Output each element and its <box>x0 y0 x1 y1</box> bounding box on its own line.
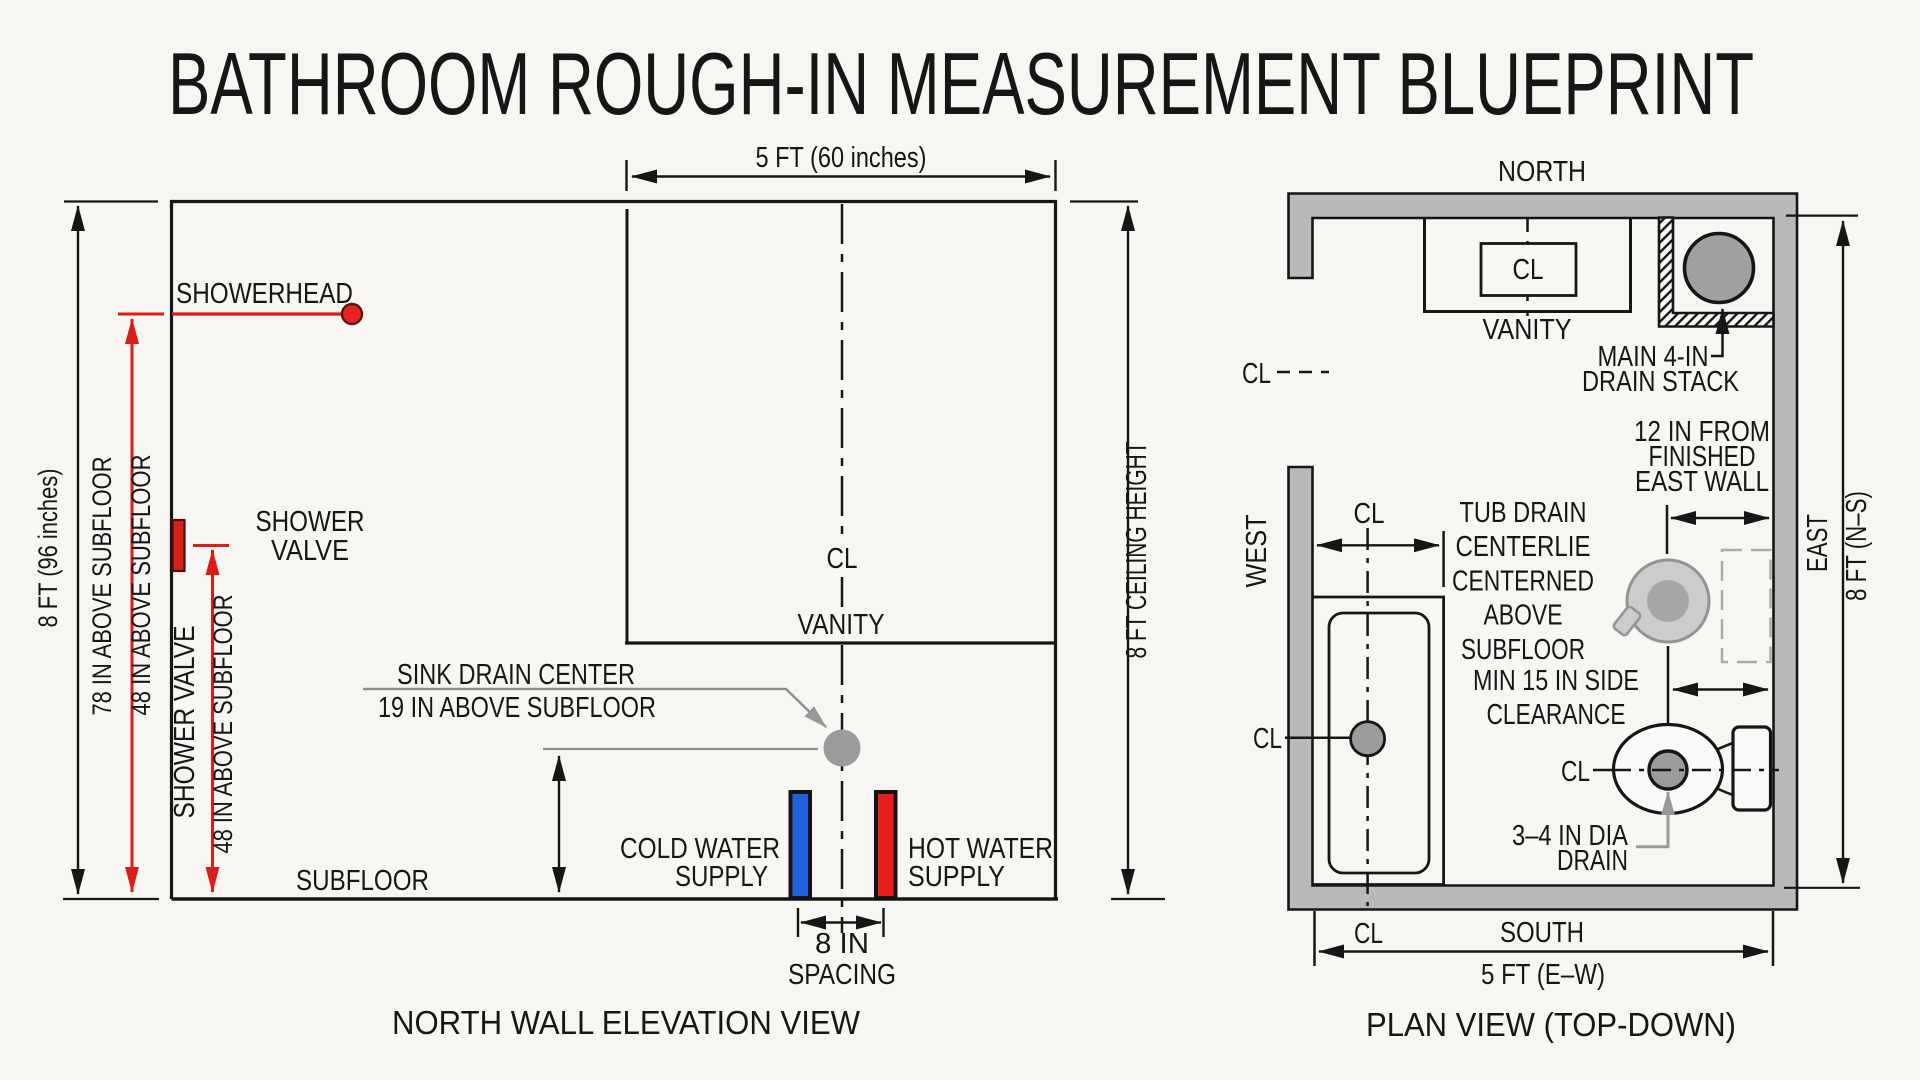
svg-text:NORTH: NORTH <box>1498 156 1586 188</box>
svg-text:8 FT (96 inches): 8 FT (96 inches) <box>33 469 63 628</box>
svg-text:CL: CL <box>1354 918 1383 950</box>
svg-text:CL: CL <box>1513 254 1544 286</box>
svg-text:8 IN: 8 IN <box>815 928 869 960</box>
svg-text:48 IN ABOVE SUBFLOOR: 48 IN ABOVE SUBFLOOR <box>208 595 238 854</box>
svg-text:CENTERNED: CENTERNED <box>1452 565 1594 597</box>
svg-text:DRAIN: DRAIN <box>1557 845 1628 877</box>
svg-text:SUBFLOOR: SUBFLOOR <box>296 865 429 897</box>
svg-text:5 FT (60 inches): 5 FT (60 inches) <box>756 142 927 174</box>
svg-text:VALVE: VALVE <box>271 535 349 567</box>
svg-text:PLAN VIEW (TOP-DOWN): PLAN VIEW (TOP-DOWN) <box>1366 1007 1736 1044</box>
svg-text:TUB DRAIN: TUB DRAIN <box>1460 497 1587 529</box>
svg-text:CL: CL <box>1561 756 1590 788</box>
svg-text:BATHROOM ROUGH-IN MEASUREMENT: BATHROOM ROUGH-IN MEASUREMENT BLUEPRINT <box>168 34 1754 133</box>
svg-text:5 FT (E–W): 5 FT (E–W) <box>1481 959 1605 991</box>
svg-text:MIN 15 IN SIDE: MIN 15 IN SIDE <box>1473 665 1639 697</box>
svg-text:EAST: EAST <box>1802 514 1834 572</box>
svg-text:48 IN ABOVE SUBFLOOR: 48 IN ABOVE SUBFLOOR <box>126 455 156 716</box>
svg-text:EAST WALL: EAST WALL <box>1635 466 1769 498</box>
svg-text:SHOWERHEAD: SHOWERHEAD <box>176 278 353 310</box>
svg-text:8 FT (N–S): 8 FT (N–S) <box>1841 491 1873 601</box>
svg-text:SUBFLOOR: SUBFLOOR <box>1461 634 1585 666</box>
svg-text:78 IN ABOVE SUBFLOOR: 78 IN ABOVE SUBFLOOR <box>87 457 117 716</box>
svg-text:SHOWER: SHOWER <box>256 506 365 538</box>
svg-text:CL: CL <box>1354 498 1385 530</box>
svg-text:SUPPLY: SUPPLY <box>908 861 1005 893</box>
svg-text:8 FT CEILING HEIGHT: 8 FT CEILING HEIGHT <box>1121 442 1153 659</box>
svg-text:VANITY: VANITY <box>798 609 885 641</box>
svg-text:SINK DRAIN CENTER: SINK DRAIN CENTER <box>397 659 635 691</box>
svg-text:NORTH WALL ELEVATION VIEW: NORTH WALL ELEVATION VIEW <box>392 1005 860 1042</box>
svg-text:CENTERLIE: CENTERLIE <box>1456 531 1591 563</box>
svg-text:ABOVE: ABOVE <box>1484 600 1563 632</box>
svg-text:SPACING: SPACING <box>788 959 896 991</box>
svg-text:DRAIN STACK: DRAIN STACK <box>1582 366 1739 398</box>
svg-text:SOUTH: SOUTH <box>1500 917 1584 949</box>
svg-text:CL: CL <box>1253 723 1282 755</box>
svg-text:19 IN ABOVE SUBFLOOR: 19 IN ABOVE SUBFLOOR <box>378 692 656 724</box>
svg-text:CL: CL <box>1242 358 1271 390</box>
svg-text:VANITY: VANITY <box>1483 314 1572 346</box>
svg-text:WEST: WEST <box>1241 515 1273 588</box>
svg-text:SHOWER VALVE: SHOWER VALVE <box>169 626 201 819</box>
svg-text:SUPPLY: SUPPLY <box>675 861 768 893</box>
svg-text:CL: CL <box>827 543 858 575</box>
svg-text:CLEARANCE: CLEARANCE <box>1487 699 1626 731</box>
